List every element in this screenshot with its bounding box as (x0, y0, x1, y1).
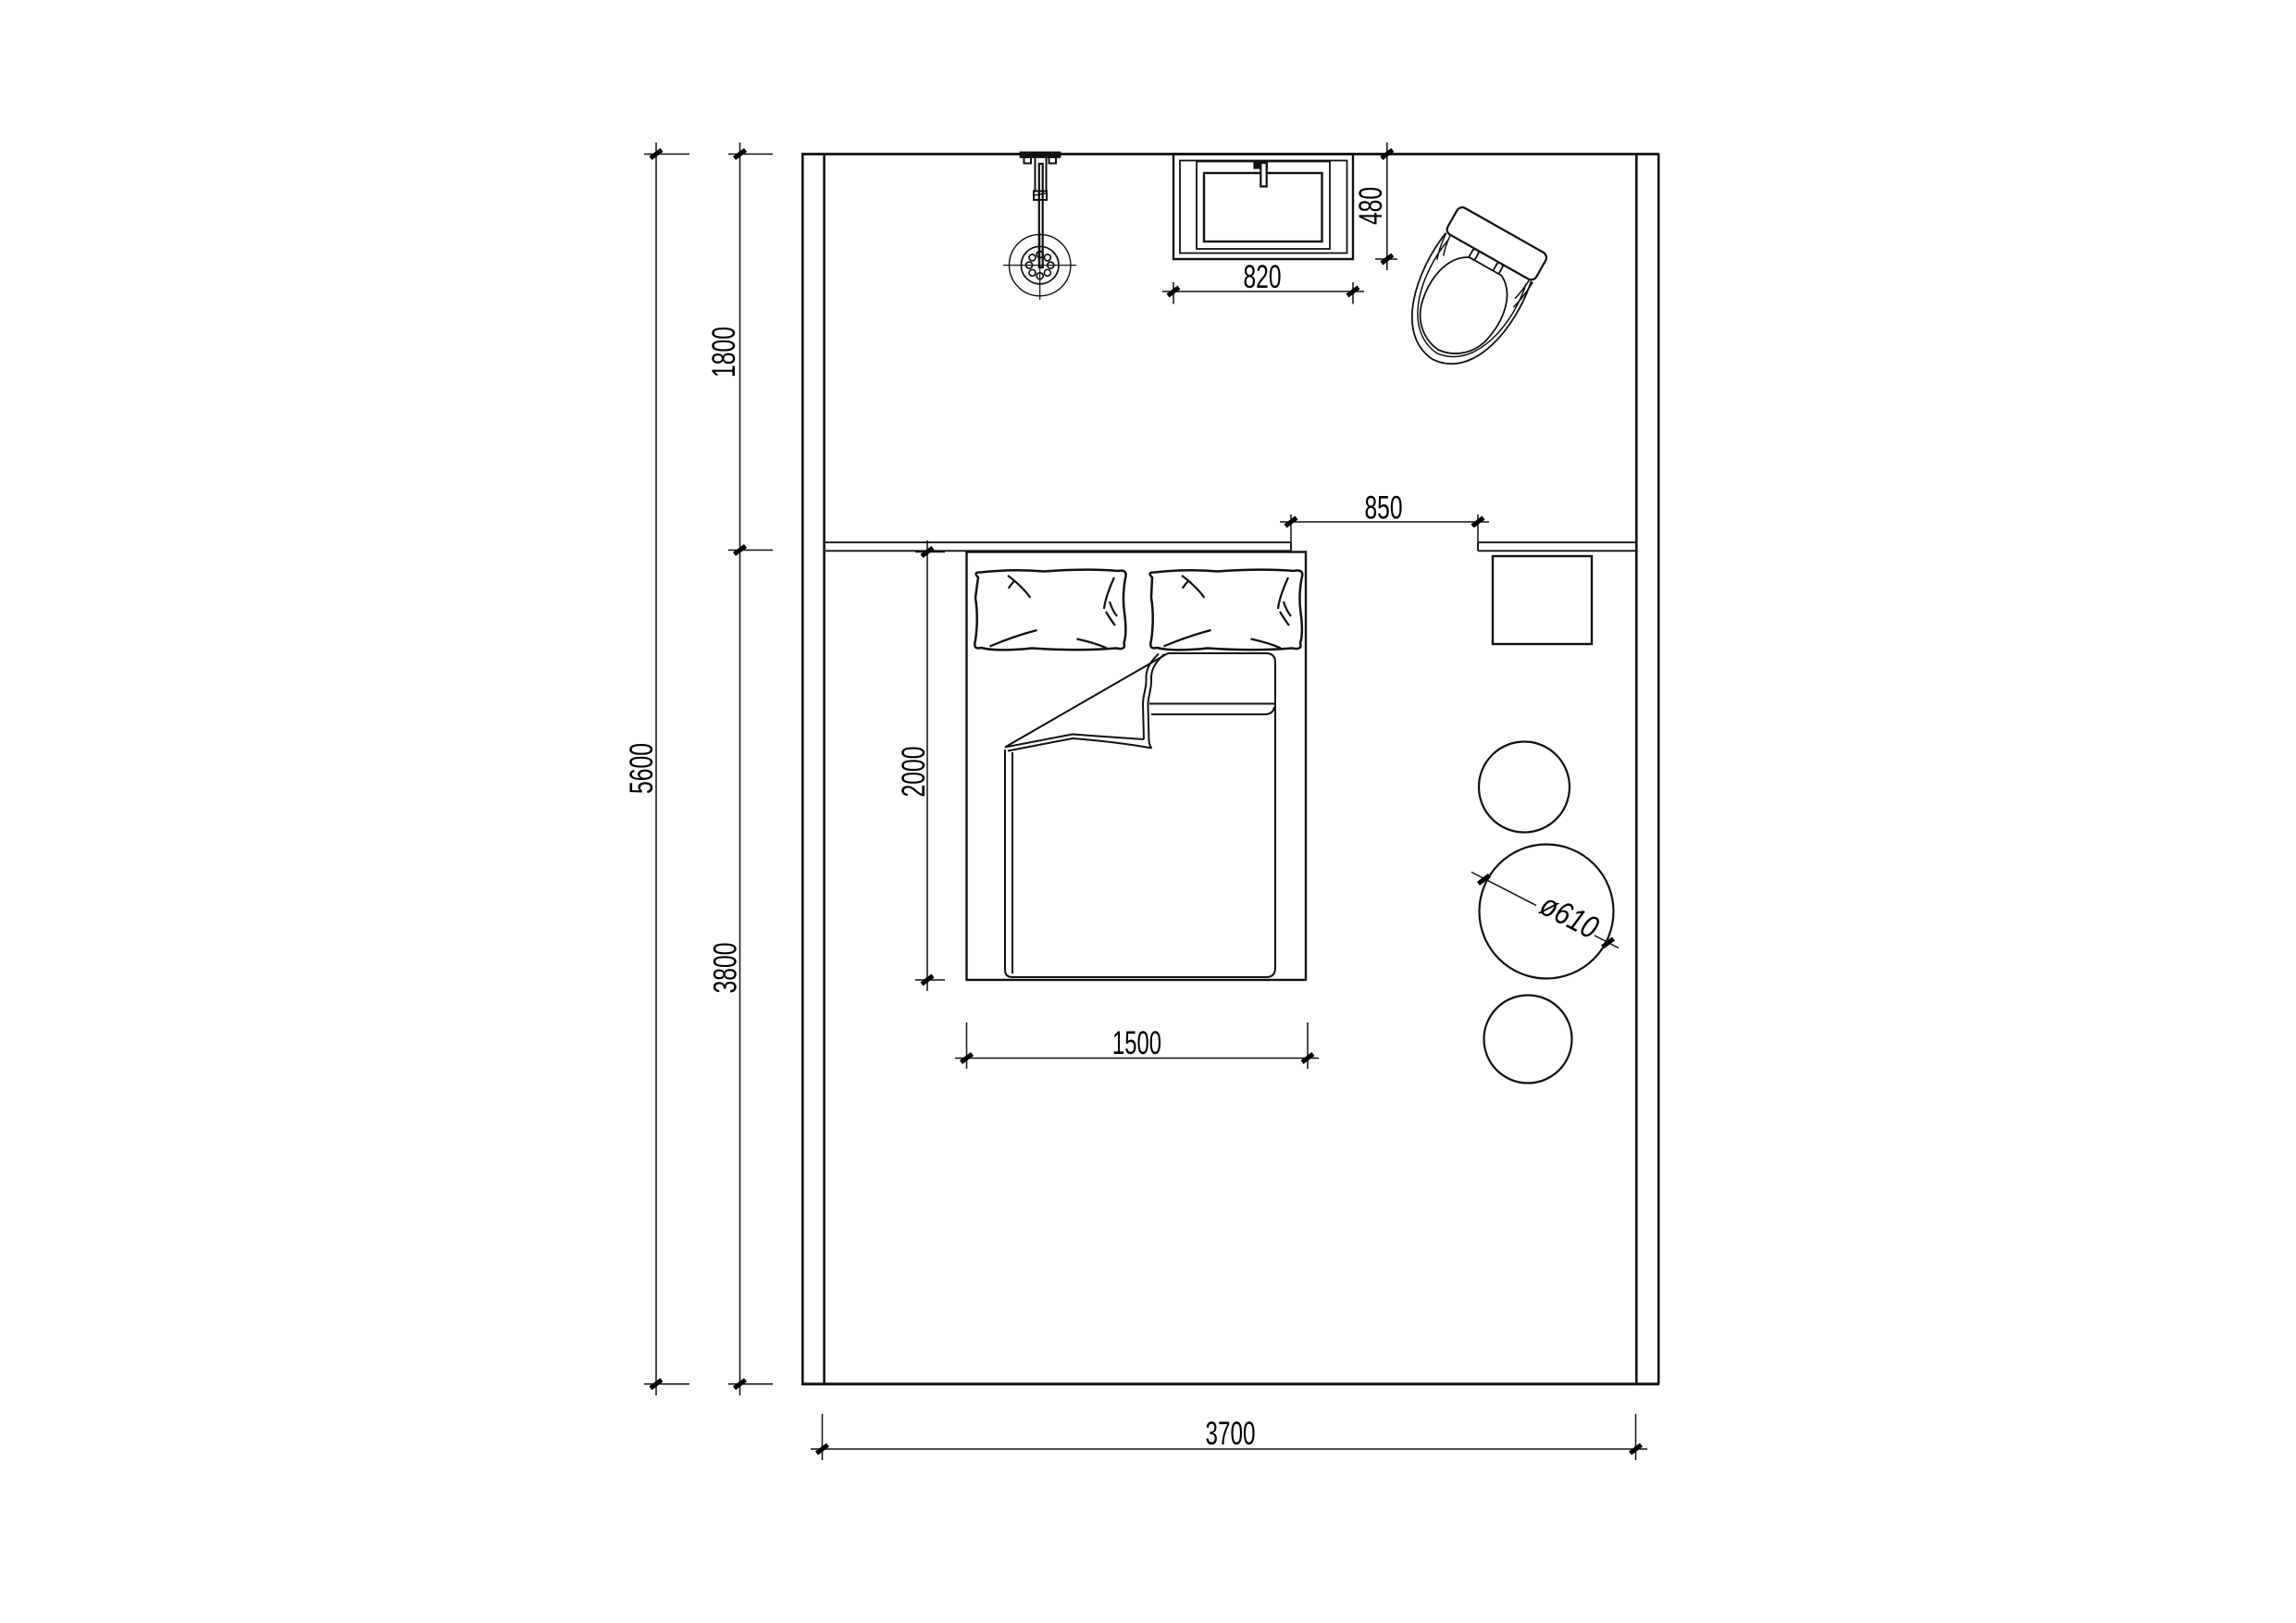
svg-text:850: 850 (1365, 489, 1403, 527)
svg-text:5600: 5600 (623, 743, 660, 794)
svg-text:3700: 3700 (1206, 1415, 1256, 1452)
svg-text:3800: 3800 (707, 943, 744, 994)
svg-text:1800: 1800 (705, 327, 742, 378)
svg-text:1500: 1500 (1112, 1024, 1161, 1061)
svg-text:2000: 2000 (895, 747, 932, 798)
svg-text:480: 480 (1352, 187, 1389, 225)
svg-text:820: 820 (1244, 258, 1282, 295)
